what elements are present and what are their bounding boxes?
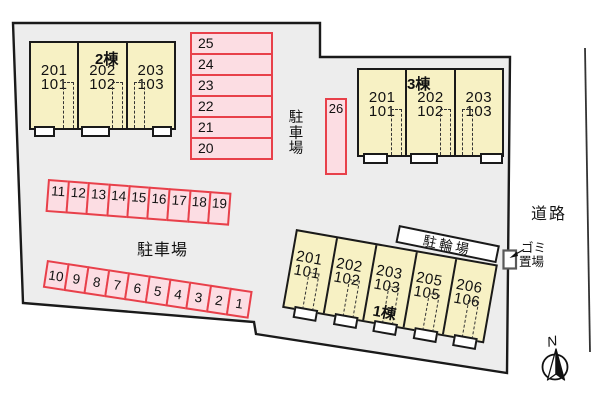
- entrance-porch: [410, 153, 438, 164]
- road-label: 道路: [531, 200, 567, 224]
- garbage-station-label: ゴミ 置場: [519, 242, 549, 269]
- parking-stall: 20: [190, 137, 273, 160]
- building-2: 2棟 201 101 202 102 203 103: [29, 41, 176, 130]
- building-3: 3棟 201 101 202 102 203 103: [357, 68, 504, 157]
- parking-stall: 23: [190, 74, 273, 97]
- entrance-porch: [81, 126, 110, 137]
- stair-dashed-outline: [134, 82, 145, 128]
- building-unit: 201 101: [359, 70, 405, 155]
- road-edge-line: [585, 48, 590, 352]
- garbage-station-box: [504, 251, 517, 269]
- stair-dashed-outline: [63, 82, 74, 128]
- parking-stall: 21: [190, 116, 273, 139]
- parking-label-main: 駐車場: [137, 236, 188, 260]
- parking-stall-26: 26: [325, 98, 347, 175]
- parking-label-vertical: 駐車場: [288, 111, 304, 158]
- parking-stall: 25: [190, 32, 273, 55]
- building-unit: 201 101: [31, 43, 77, 128]
- stair-dashed-outline: [112, 82, 123, 128]
- building-1-name: 1棟: [371, 300, 398, 325]
- entrance-porch: [152, 126, 172, 137]
- parking-stall: 22: [190, 95, 273, 118]
- entrance-porch: [34, 126, 55, 137]
- parking-stall: 24: [190, 53, 273, 76]
- parking-column: 252423222120: [190, 32, 273, 160]
- building-unit: 203 103: [454, 70, 502, 155]
- site-plan-canvas: 2棟 201 101 202 102 203 103: [0, 0, 600, 400]
- entrance-porch: [480, 153, 503, 164]
- building-2-name: 2棟: [95, 48, 118, 69]
- stair-dashed-outline: [391, 109, 402, 155]
- parking-stall: 19: [207, 191, 232, 226]
- building-unit: 203 103: [126, 43, 174, 128]
- stair-dashed-outline: [440, 109, 451, 155]
- garbage-label-line1: ゴミ: [519, 242, 549, 256]
- building-3-name: 3棟: [407, 73, 430, 94]
- parking-stall: 1: [226, 288, 253, 319]
- garbage-label-line2: 置場: [519, 256, 549, 270]
- building-3-units: 201 101 202 102 203 103: [359, 70, 502, 155]
- compass-icon: [543, 349, 568, 380]
- entrance-porch: [363, 153, 388, 164]
- stair-dashed-outline: [462, 109, 473, 155]
